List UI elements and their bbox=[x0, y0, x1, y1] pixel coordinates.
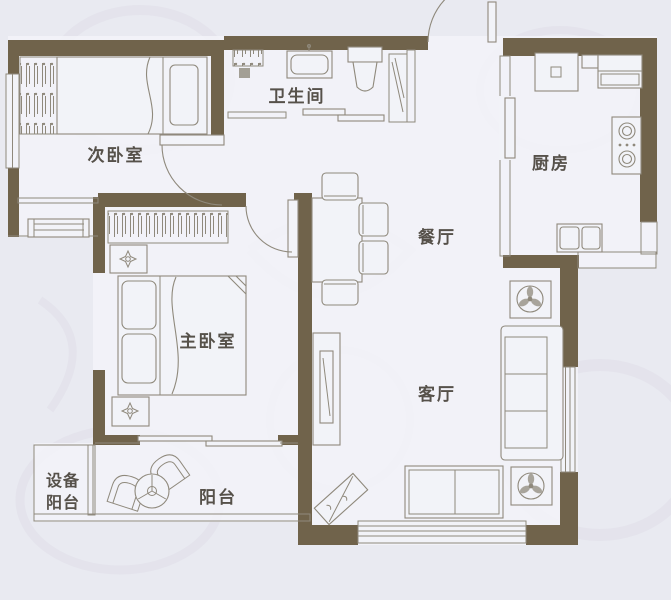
svg-text:设备: 设备 bbox=[46, 471, 80, 490]
window-living-bottom bbox=[358, 521, 526, 543]
svg-text:阳台: 阳台 bbox=[46, 493, 80, 512]
kitchen-cabinet-small bbox=[582, 55, 598, 68]
wall-secondary-bedroom-right bbox=[211, 40, 224, 144]
secondary-desk bbox=[28, 219, 89, 237]
shower-screen bbox=[389, 54, 407, 122]
wall-left-lower bbox=[8, 168, 19, 237]
dining-chair-top bbox=[322, 173, 358, 200]
wall-master-living-shared bbox=[298, 193, 312, 545]
wall-secondary-bedroom-top bbox=[8, 40, 223, 56]
room-label-secondary-bedroom: 次卧室 bbox=[88, 145, 145, 166]
dining-chair-bottom bbox=[322, 280, 358, 305]
kitchen-stove bbox=[612, 117, 641, 174]
window-secondary-bedroom-left bbox=[6, 74, 19, 168]
wall-living-bottom-right bbox=[526, 525, 578, 545]
wall-left-upper bbox=[8, 40, 19, 74]
dining-chair-right-2 bbox=[359, 241, 388, 274]
room-label-master-bedroom: 主卧室 bbox=[180, 331, 237, 352]
room-label-living: 客厅 bbox=[417, 384, 456, 405]
room-label-dining: 餐厅 bbox=[418, 227, 456, 248]
floor-plan-svg: 次卧室 卫生间 厨房 餐厅 主卧室 客厅 阳台 设备 阳台 bbox=[0, 0, 671, 600]
side-table-top bbox=[510, 281, 551, 318]
wall-secondary-master-shared bbox=[98, 193, 246, 207]
bathroom-floor-drain bbox=[239, 68, 250, 78]
side-table-bottom bbox=[511, 467, 552, 505]
room-label-bathroom: 卫生间 bbox=[269, 86, 326, 107]
dining-chair-right-1 bbox=[359, 203, 388, 236]
nightstand-bottom bbox=[112, 397, 149, 426]
kitchen-sliding-door bbox=[505, 98, 515, 158]
entry-door bbox=[428, 0, 496, 42]
master-bedroom-furniture bbox=[108, 211, 246, 426]
wall-master-left-lower bbox=[93, 370, 105, 445]
kitchen-sink bbox=[557, 224, 602, 252]
bathroom-rack bbox=[233, 50, 263, 66]
tv-cabinet bbox=[313, 333, 340, 445]
secondary-bed bbox=[57, 57, 207, 134]
wall-bathroom-top bbox=[224, 36, 428, 50]
nightstand-top bbox=[110, 245, 147, 273]
master-wardrobe bbox=[108, 211, 228, 243]
wall-master-left-upper bbox=[93, 197, 105, 273]
secondary-wardrobe bbox=[20, 57, 57, 134]
room-label-kitchen: 厨房 bbox=[532, 153, 570, 174]
wall-kitchen-top bbox=[503, 38, 657, 56]
room-label-balcony: 阳台 bbox=[199, 487, 237, 508]
dining-table bbox=[312, 198, 362, 282]
sofa bbox=[501, 326, 563, 460]
kitchen-cabinet-large bbox=[598, 55, 642, 88]
balcony-round-table bbox=[135, 474, 169, 508]
coffee-table bbox=[405, 466, 503, 518]
refrigerator bbox=[535, 53, 578, 91]
floor-plan-page: 次卧室 卫生间 厨房 餐厅 主卧室 客厅 阳台 设备 阳台 bbox=[0, 0, 671, 600]
